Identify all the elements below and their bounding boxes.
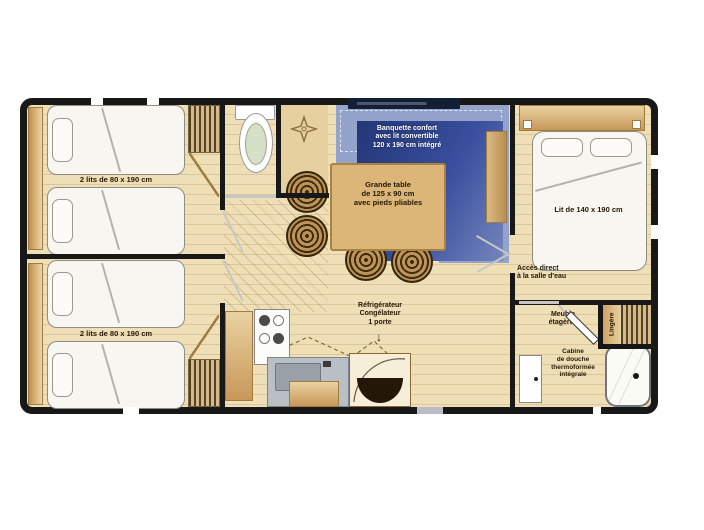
banquette-label: Banquette confort avec lit convertible 1… xyxy=(343,125,471,150)
bedroom-bottom-left-label: 2 lits de 80 x 190 cm xyxy=(45,329,187,338)
wall-wc-stub xyxy=(276,193,329,198)
faucet xyxy=(323,361,331,367)
window-top-1 xyxy=(91,98,103,105)
headboard-shelf-bottom xyxy=(28,263,43,405)
door-handle xyxy=(534,377,538,381)
mobile-home-outline: 2 lits de 80 x 190 cm 2 lits de 80 x 190… xyxy=(20,98,658,414)
burner xyxy=(273,333,284,344)
shower-label: Cabine de douche thermoformée intégrale xyxy=(541,348,605,379)
wardrobe-shelf-bottom xyxy=(189,315,219,359)
window-bottom-1 xyxy=(123,407,139,414)
wardrobe-shelf-top xyxy=(189,153,219,197)
wardrobe-bedroomR xyxy=(519,105,645,131)
compass-icon xyxy=(290,115,318,143)
burner xyxy=(259,315,270,326)
headboard-shelf-top xyxy=(28,107,43,250)
bathroom-door xyxy=(519,355,542,403)
burner xyxy=(273,315,284,326)
wall-living-bedroom-a xyxy=(510,105,515,235)
table-label: Grande table de 125 x 90 cm avec pieds p… xyxy=(332,180,444,207)
kitchen-cabinet-left xyxy=(225,311,253,401)
wall-left-corridor-c xyxy=(220,303,225,407)
pillow xyxy=(52,199,73,243)
wardrobe-hanging-linen xyxy=(621,305,651,344)
wall-living-bedroom-b xyxy=(510,273,515,407)
window-right-2 xyxy=(651,225,658,239)
dining-chair-1 xyxy=(286,171,328,213)
burner xyxy=(259,333,270,344)
double-bed xyxy=(532,131,647,271)
wall-bedroom-divider xyxy=(27,254,220,259)
arrow-down-icon: ↓ xyxy=(373,330,385,344)
pillow xyxy=(541,138,583,157)
banquette-table-leaf xyxy=(486,131,507,223)
window-bottom-living xyxy=(417,407,443,414)
pillow xyxy=(52,272,73,316)
dining-table: Grande table de 125 x 90 cm avec pieds p… xyxy=(330,163,446,251)
pillow xyxy=(52,118,73,162)
floorplan-canvas: 2 lits de 80 x 190 cm 2 lits de 80 x 190… xyxy=(0,0,704,530)
window-bottom-2 xyxy=(593,407,601,414)
fridge-label: Réfrigérateur Congélateur 1 porte xyxy=(341,302,419,327)
bathroom-access-door xyxy=(519,301,559,304)
access-label: Accès direct à la salle d'eau xyxy=(517,265,603,282)
wall-wc-right xyxy=(276,105,281,197)
shower-tray xyxy=(605,345,651,407)
wall-left-corridor-a xyxy=(220,105,225,210)
pillow xyxy=(52,353,73,397)
watermark-band xyxy=(348,98,460,109)
toilet-seat xyxy=(245,123,267,165)
linen-closet: Lingère xyxy=(598,305,651,349)
shower-drain xyxy=(633,373,639,379)
bedroom-top-left-label: 2 lits de 80 x 190 cm xyxy=(45,175,187,184)
wardrobe-hanging-top xyxy=(188,105,220,153)
wc-door xyxy=(225,195,276,198)
wardrobe-hanging-bottom xyxy=(188,359,220,407)
linen-label: Lingère xyxy=(603,305,621,344)
fridge-symbol xyxy=(349,353,411,407)
dining-chair-2 xyxy=(286,215,328,257)
pillow xyxy=(590,138,632,157)
kitchen-cabinet-front xyxy=(289,381,339,407)
double-bed-label: Lit de 140 x 190 cm xyxy=(532,205,645,214)
window-right-1 xyxy=(651,155,658,169)
window-top-2 xyxy=(147,98,159,105)
wall-left-corridor-b xyxy=(220,254,225,259)
